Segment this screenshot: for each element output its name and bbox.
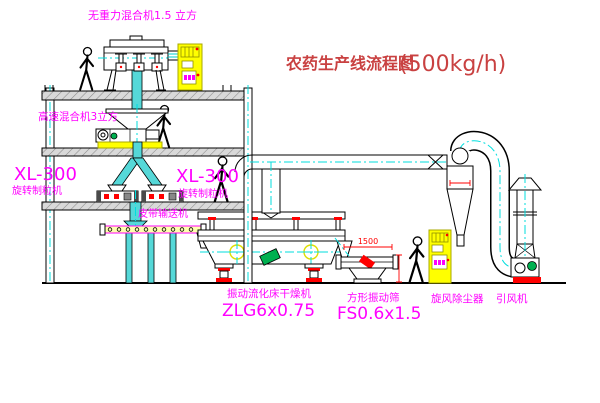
dimension-1500-text: 1500	[358, 237, 378, 246]
mixer-base	[98, 142, 162, 148]
label-high-speed-mixer: 高速混合机3立方	[38, 110, 118, 123]
building-column-right	[244, 85, 252, 283]
granulator-left	[97, 185, 138, 202]
mixer-agitators	[115, 54, 163, 71]
label-screen-model: FS0.6x1.5	[337, 304, 421, 324]
y-chute	[112, 158, 162, 185]
label-cyclone: 旋风除尘器	[431, 292, 484, 305]
label-granulator-right-name: 旋转制粒机	[178, 187, 228, 200]
fan-base	[513, 277, 541, 283]
label-gravity-mixer: 无重力混合机1.5 立方	[88, 8, 197, 22]
label-dryer-model: ZLG6x0.75	[222, 301, 315, 321]
worker-figure-4	[410, 237, 424, 282]
label-belt-conveyor: 皮带输送机	[138, 207, 188, 220]
label-fan: 引风机	[496, 292, 528, 305]
induced-draft-fan	[511, 258, 541, 283]
label-granulator-left-name: 旋转制粒机	[12, 184, 62, 197]
fan-motor	[528, 262, 537, 271]
page-title-capacity: (500kg/h)	[399, 52, 506, 77]
worker-figure-1	[80, 48, 93, 90]
mixer-motor	[111, 133, 117, 139]
dryer-foot-left	[215, 264, 233, 282]
control-cabinet-1	[178, 44, 202, 90]
control-cabinet-2	[429, 230, 451, 283]
process-flow-drawing: 1500 无重力混合机1.5 立方 高速混合机3立方 XL-300 旋转制粒机 …	[0, 0, 600, 403]
fluid-bed-dryer	[198, 212, 352, 282]
dryer-foot-right	[305, 264, 323, 282]
floor-slab-1	[42, 91, 252, 100]
granulator-right	[142, 185, 183, 202]
dryer-deck	[198, 230, 345, 241]
floor-slab-2	[42, 148, 252, 156]
pfd-svg: 1500 无重力混合机1.5 立方 高速混合机3立方 XL-300 旋转制粒机 …	[0, 0, 600, 403]
label-granulator-right-model: XL-300	[176, 166, 239, 187]
cyclone-outlet	[452, 148, 468, 164]
label-dryer-name: 振动流化床干燥机	[227, 287, 311, 300]
page-title: 农药生产线流程图	[285, 54, 414, 73]
gravity-mixer	[98, 36, 184, 112]
mixer-outlet	[133, 142, 142, 158]
exhaust-duct	[235, 155, 447, 213]
label-granulator-left-model: XL-300	[14, 164, 77, 185]
cyclone-cone	[447, 189, 473, 235]
belt-conveyor	[100, 224, 214, 283]
duct-horizontal	[252, 155, 447, 169]
screen-base	[349, 268, 386, 279]
label-screen-name: 方形振动筛	[347, 291, 400, 304]
cyclone-body	[447, 166, 473, 189]
